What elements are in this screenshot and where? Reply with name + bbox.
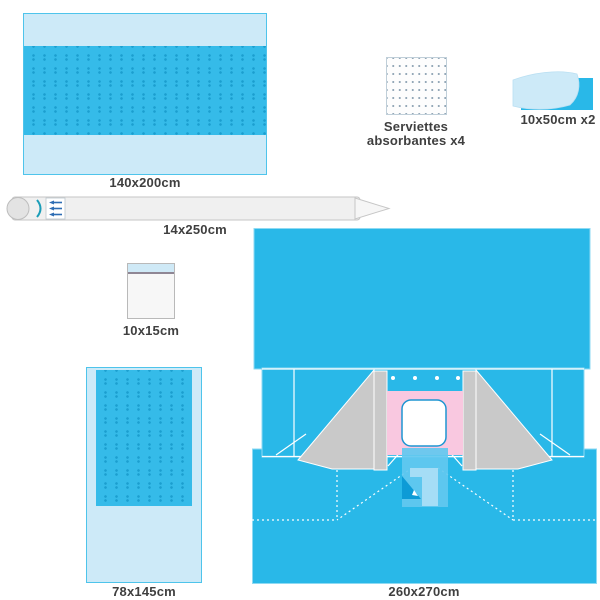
plastic-bag [127, 263, 175, 319]
drape-78x145-label: 78x145cm [84, 585, 204, 599]
tape-label: 10x50cm x2 [503, 113, 600, 127]
fenestration-opening [402, 400, 446, 446]
bag-seal-line [128, 272, 174, 274]
fixation-dot [413, 376, 417, 380]
absorbent-towels-label-line1: Serviettes [356, 120, 476, 134]
fold-direction-icon [46, 198, 65, 219]
adhesive-tape-strips [508, 66, 598, 114]
absorbent-towels-label-line2: absorbantes x4 [356, 134, 476, 148]
absorbent-towels [386, 57, 447, 115]
pouch-highlight [422, 468, 438, 506]
bag-seal-strip [128, 264, 174, 272]
drape-140x200-label: 140x200cm [23, 176, 267, 190]
cover-tip [355, 198, 389, 219]
drape-top-panel [254, 229, 590, 370]
fixation-dot [391, 376, 395, 380]
main-surgical-drape [252, 228, 597, 584]
bag-label: 10x15cm [101, 324, 201, 338]
fixation-dot [456, 376, 460, 380]
cover-end-cap [7, 198, 29, 220]
drape-78x145 [86, 367, 202, 583]
tape-strip [513, 72, 579, 109]
drape-140x200-absorbent-zone [24, 46, 266, 135]
drape-140x200 [23, 13, 267, 175]
instrument-cover-label: 14x250cm [115, 223, 275, 237]
instrument-cover [5, 192, 395, 226]
drape-78x145-absorbent-zone [96, 370, 192, 506]
right-side-bar [463, 371, 476, 470]
absorbent-towels-label: Serviettes absorbantes x4 [356, 120, 476, 148]
main-drape-label: 260x270cm [354, 585, 494, 599]
left-side-bar [374, 371, 387, 470]
surgical-pack-diagram: 140x200cm Serviettes absorbantes x4 10x5… [0, 0, 600, 600]
fixation-dot [435, 376, 439, 380]
